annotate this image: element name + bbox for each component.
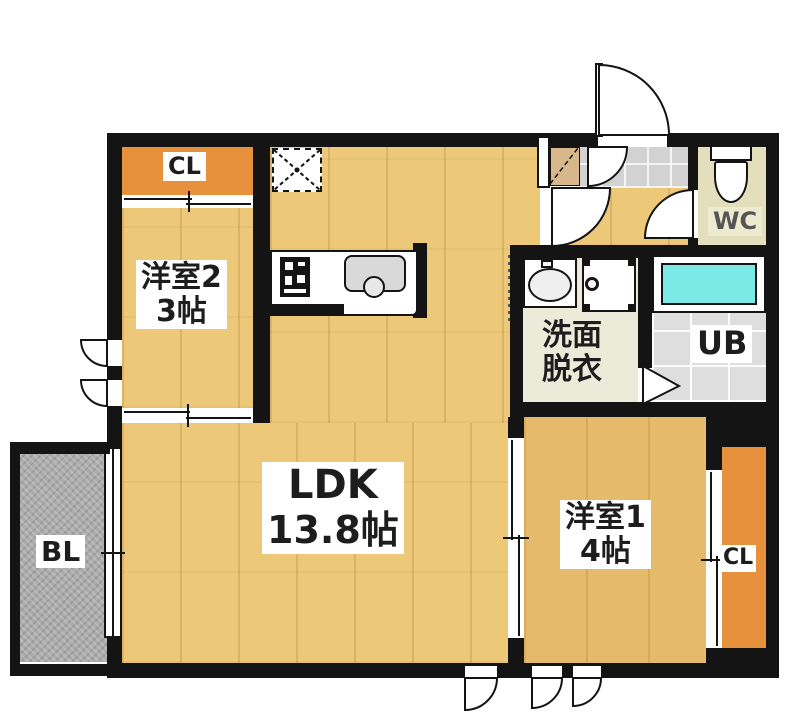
hall-door-swing-arc [552, 188, 610, 246]
label-wc: WC [708, 207, 762, 236]
label-closet-bedroom2: CL [163, 152, 206, 181]
ub-folding-door [643, 366, 679, 404]
window-bottom2-swing-arc [532, 678, 562, 708]
shoe-cabinet-diagonal [550, 148, 578, 184]
window2-upper-swing-arc [81, 340, 107, 366]
label-balcony: BL [36, 535, 85, 568]
label-bedroom1: 洋室1 4帖 [560, 500, 651, 569]
wc-door-swing-arc [645, 190, 693, 238]
label-washroom: 洗面 脱衣 [537, 318, 607, 387]
floor-plan: CL 洋室2 3帖 LDK 13.8帖 洋室1 4帖 洗面 脱衣 UB WC B… [0, 0, 800, 724]
label-ldk: LDK 13.8帖 [262, 462, 404, 554]
window-bottom3-swing-arc [573, 678, 601, 706]
genkan-door-swing-arc [588, 147, 627, 186]
label-closet-bedroom1: CL [720, 545, 756, 572]
window2-lower-swing-arc [81, 380, 107, 406]
refrigerator-cross-dot [295, 168, 300, 173]
door-window-symbols [0, 0, 800, 724]
label-unit-bath: UB [692, 325, 752, 363]
label-bedroom2: 洋室2 3帖 [136, 260, 227, 329]
front-door-swing-arc [599, 65, 669, 135]
window-bottom1-swing-arc [465, 678, 497, 710]
